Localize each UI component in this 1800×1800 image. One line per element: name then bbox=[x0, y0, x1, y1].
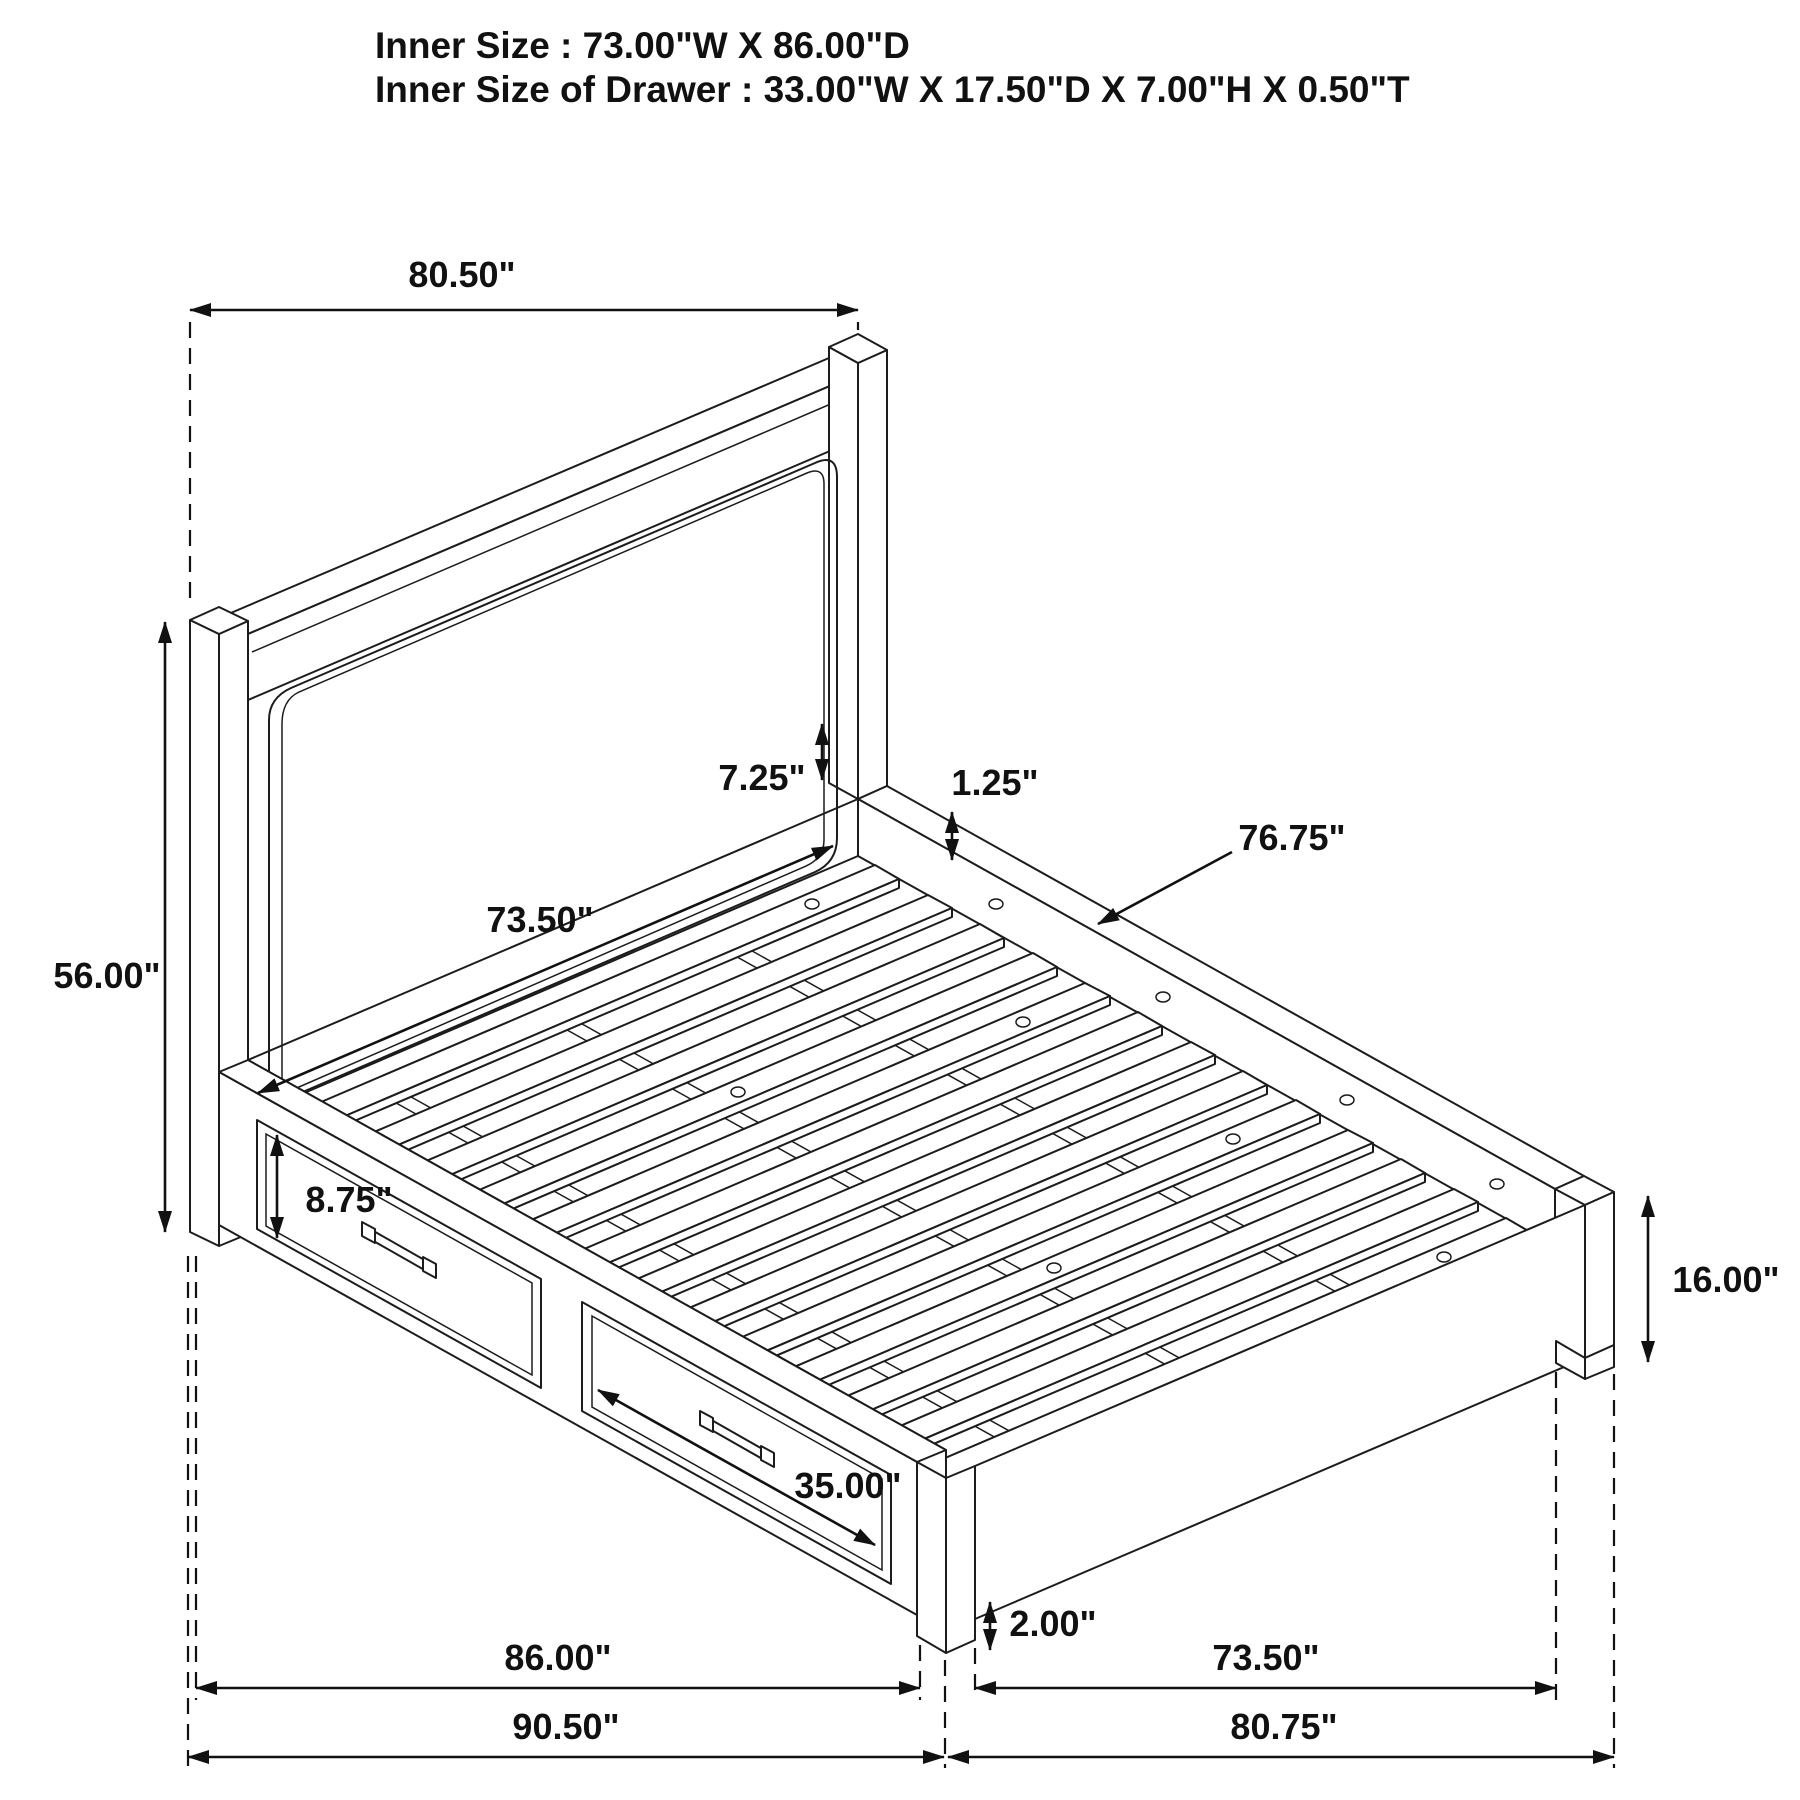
dim-label-platform-height: 16.00" bbox=[1672, 1259, 1779, 1300]
foot-corner-outer-face bbox=[1585, 1192, 1614, 1358]
dim-headboard-rail-gap: 7.25" bbox=[718, 724, 822, 798]
headboard-rail-accent-line bbox=[252, 394, 854, 652]
dim-overall-width: 80.75" bbox=[948, 1706, 1614, 1757]
dim-label-overall-width: 80.75" bbox=[1230, 1706, 1337, 1747]
dim-label-slat-length: 76.75" bbox=[1238, 817, 1345, 858]
front-leg bbox=[917, 1462, 975, 1653]
screw-hole bbox=[1156, 992, 1170, 1002]
dim-slat-length: 76.75" bbox=[1098, 817, 1346, 924]
dim-label-overall-depth: 90.50" bbox=[512, 1706, 619, 1747]
right-side-rail bbox=[858, 786, 1584, 1246]
bed-technical-drawing: 80.50" 56.00" 73.50" 7.25" 1.25" 76.75" bbox=[0, 0, 1800, 1800]
dim-label-headboard-width: 80.50" bbox=[408, 254, 515, 295]
dim-label-drawer-front-height: 8.75" bbox=[305, 1179, 392, 1220]
inner-size-line: Inner Size : 73.00"W X 86.00"D bbox=[375, 25, 910, 66]
dim-label-slat-thickness: 1.25" bbox=[951, 762, 1038, 803]
dim-overall-depth: 90.50" bbox=[188, 1706, 944, 1757]
headboard-right-post-side bbox=[829, 347, 858, 799]
dim-leg-reveal: 2.00" bbox=[990, 1602, 1097, 1650]
dim-headboard-height: 56.00" bbox=[53, 622, 165, 1232]
headboard-top-rail-top-face bbox=[219, 358, 858, 634]
screw-hole bbox=[1490, 1179, 1504, 1189]
headboard-right-post-front bbox=[858, 350, 887, 799]
screw-hole bbox=[989, 899, 1003, 909]
dim-label-headboard-rail-gap: 7.25" bbox=[718, 757, 805, 798]
dim-label-headboard-inner-width: 73.50" bbox=[486, 899, 593, 940]
dim-platform-height: 16.00" bbox=[1648, 1196, 1780, 1362]
dim-inner-depth-floor: 86.00" bbox=[196, 1637, 920, 1688]
dim-inner-width-floor: 73.50" bbox=[975, 1637, 1556, 1688]
headboard-left-post-side bbox=[190, 620, 219, 1246]
dim-label-headboard-height: 56.00" bbox=[53, 955, 160, 996]
dim-label-inner-width-floor: 73.50" bbox=[1212, 1637, 1319, 1678]
drawer-inner-size-line: Inner Size of Drawer : 33.00"W X 17.50"D… bbox=[375, 69, 1410, 110]
dim-label-leg-reveal: 2.00" bbox=[1009, 1603, 1096, 1644]
dim-label-drawer-front-width: 35.00" bbox=[794, 1465, 901, 1506]
dim-label-inner-depth-floor: 86.00" bbox=[504, 1637, 611, 1678]
title-block: Inner Size : 73.00"W X 86.00"D Inner Siz… bbox=[375, 25, 1410, 110]
drawing-page: 80.50" 56.00" 73.50" 7.25" 1.25" 76.75" bbox=[0, 0, 1800, 1800]
screw-hole bbox=[1340, 1095, 1354, 1105]
headboard-top-rail-front-face bbox=[248, 374, 858, 700]
